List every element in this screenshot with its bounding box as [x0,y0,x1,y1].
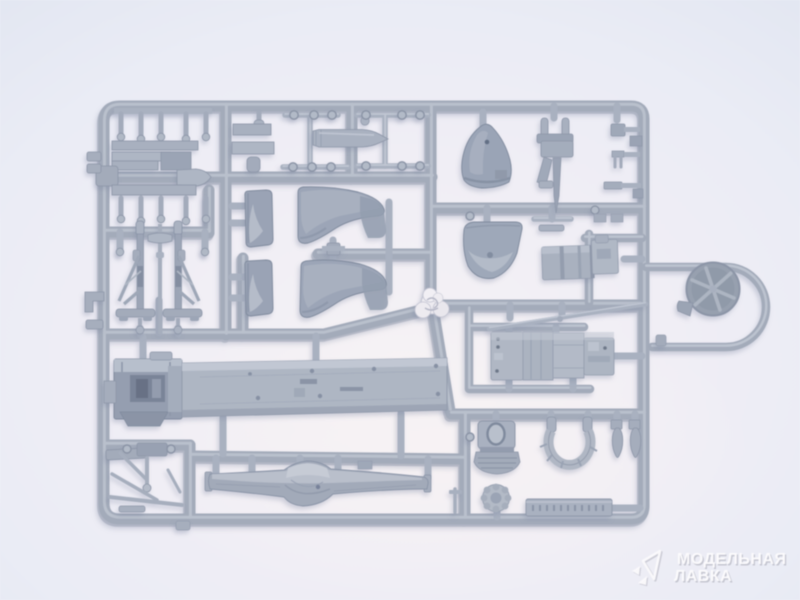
svg-text:МОДЕЛЬНАЯ: МОДЕЛЬНАЯ [677,551,786,568]
svg-text:ЛАВКА: ЛАВКА [674,568,732,585]
